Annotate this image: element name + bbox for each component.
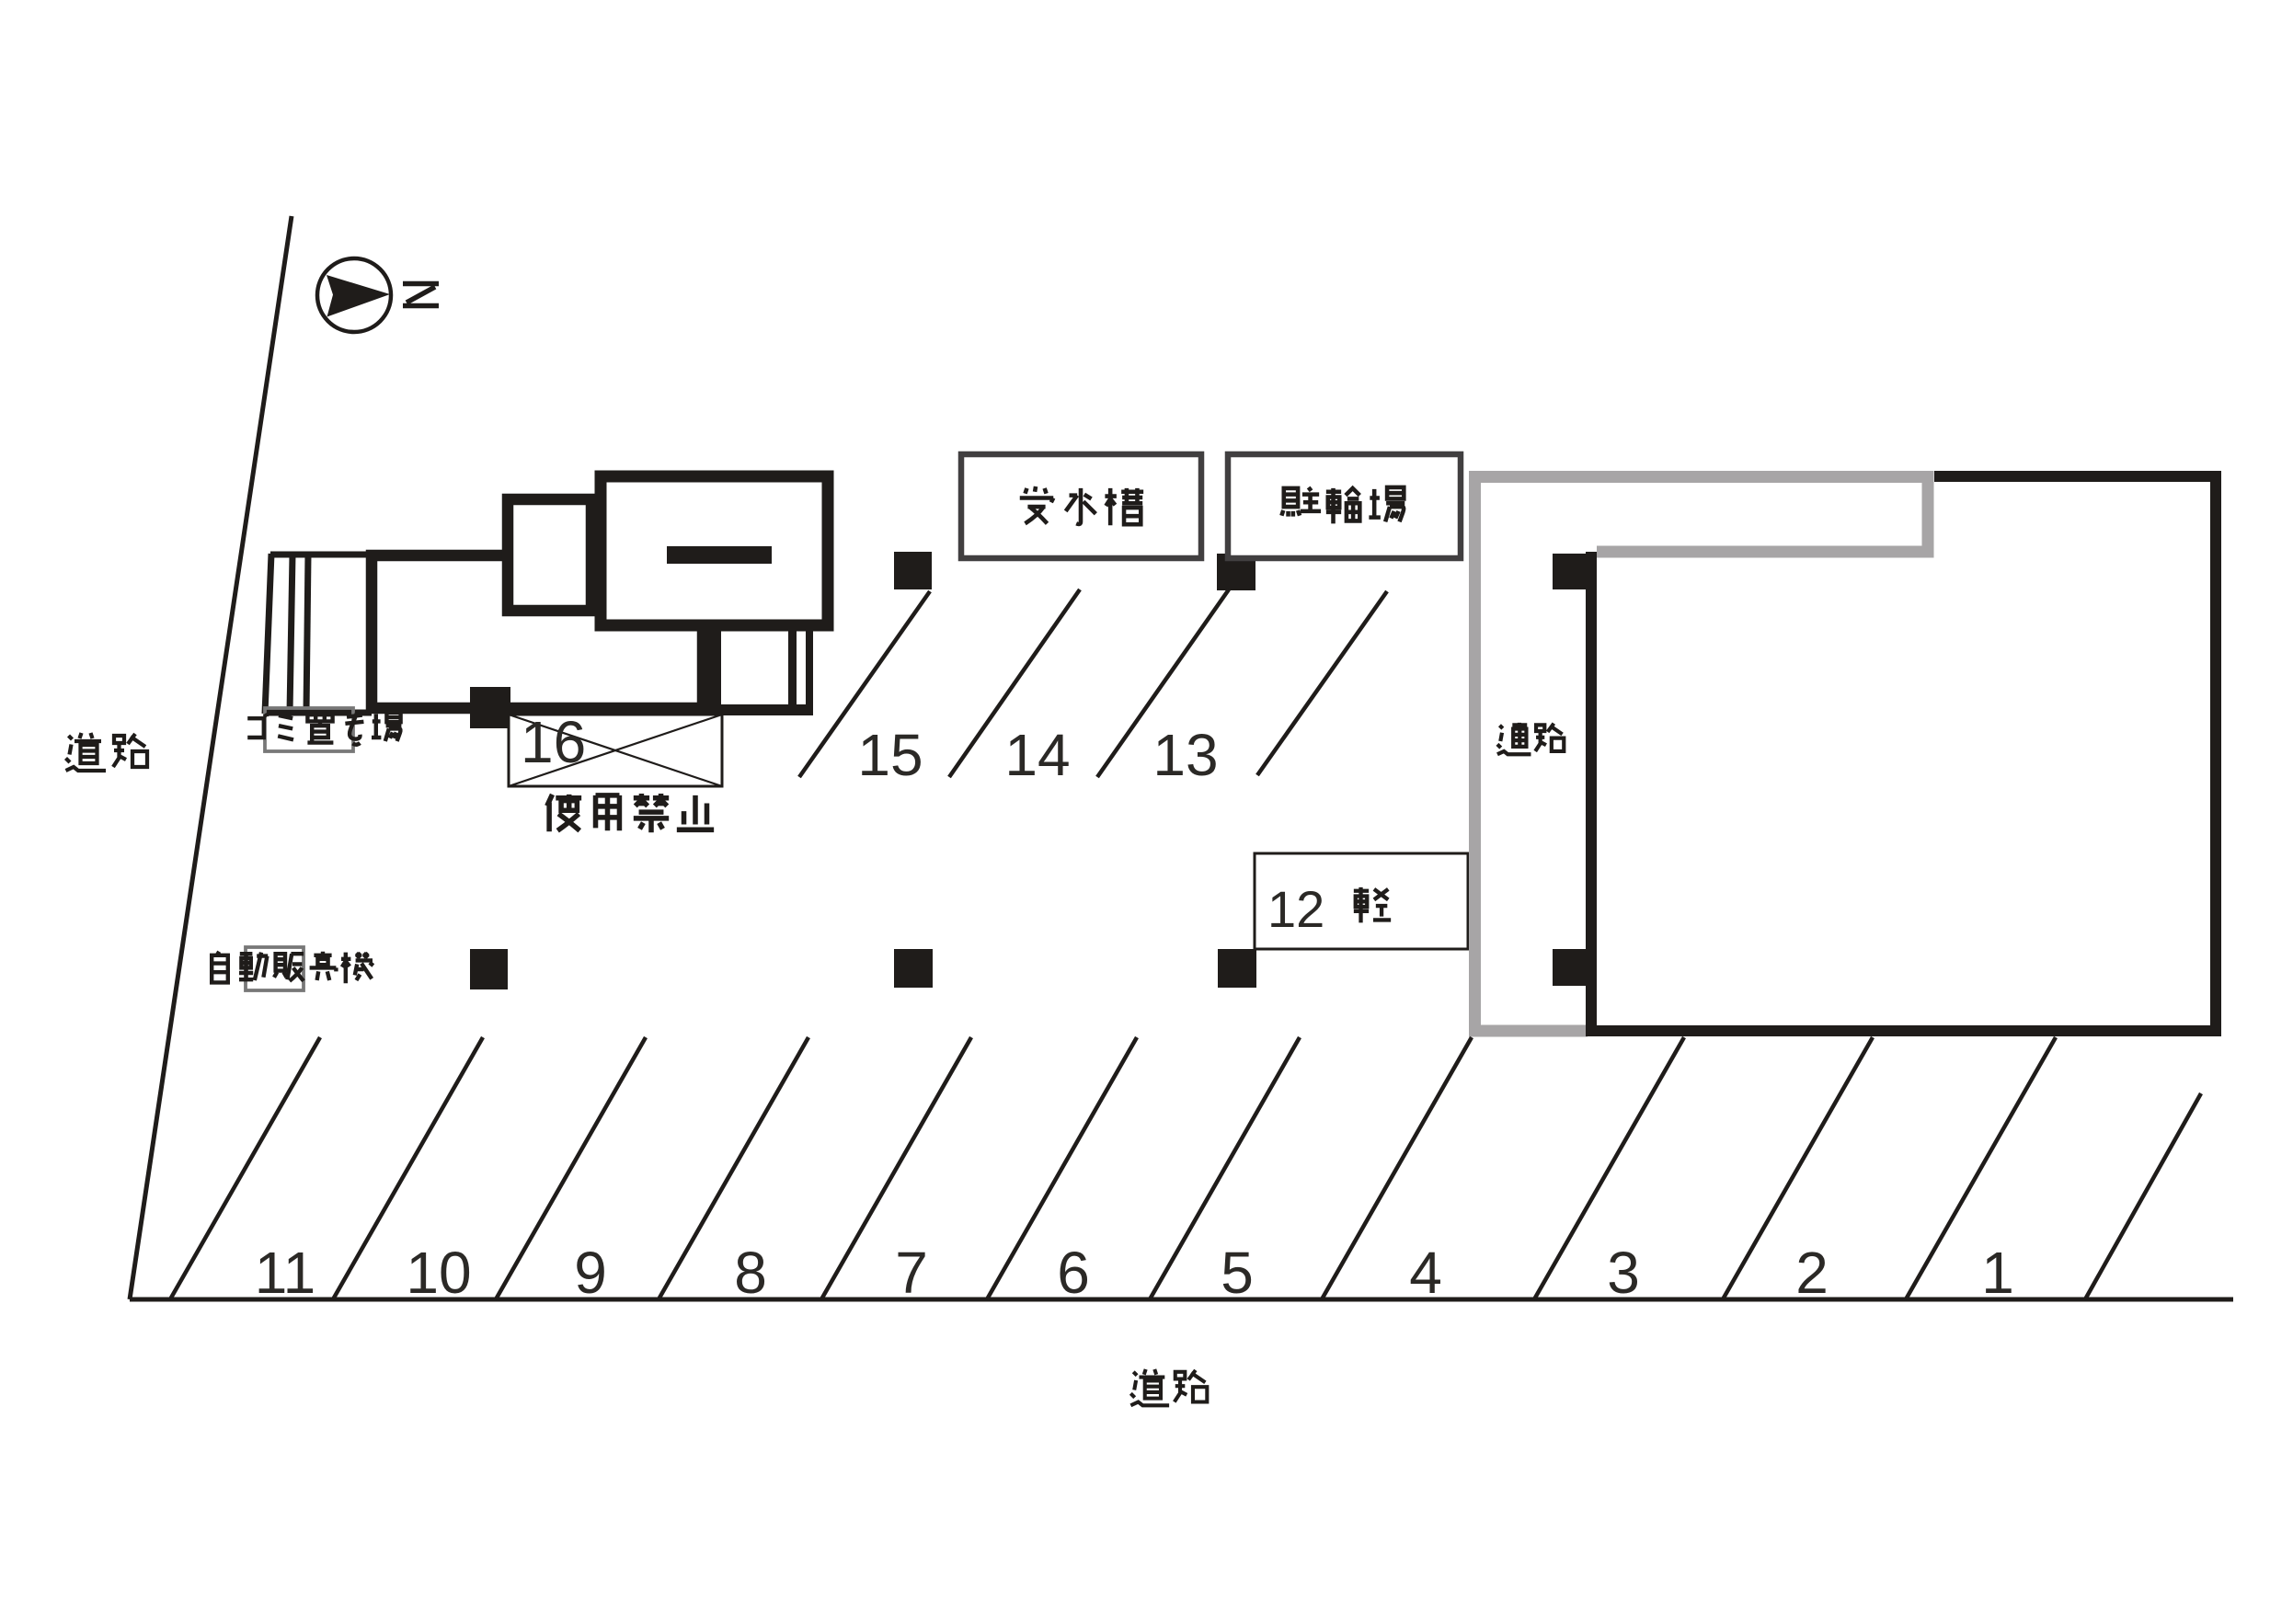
svg-text:16: 16 (521, 709, 586, 775)
svg-text:11: 11 (255, 1240, 315, 1306)
svg-text:13: 13 (1152, 722, 1218, 788)
svg-text:15: 15 (857, 722, 923, 788)
svg-text:9: 9 (574, 1240, 607, 1306)
svg-text:6: 6 (1057, 1240, 1090, 1306)
svg-text:2: 2 (1795, 1240, 1829, 1306)
svg-text:12: 12 (1267, 880, 1324, 938)
svg-text:14: 14 (1004, 722, 1070, 788)
svg-text:10: 10 (406, 1240, 471, 1306)
svg-text:8: 8 (734, 1240, 767, 1306)
svg-text:5: 5 (1221, 1240, 1254, 1306)
svg-text:1: 1 (1981, 1240, 2014, 1306)
svg-text:7: 7 (895, 1240, 928, 1306)
svg-text:4: 4 (1409, 1240, 1442, 1306)
svg-text:3: 3 (1607, 1240, 1640, 1306)
